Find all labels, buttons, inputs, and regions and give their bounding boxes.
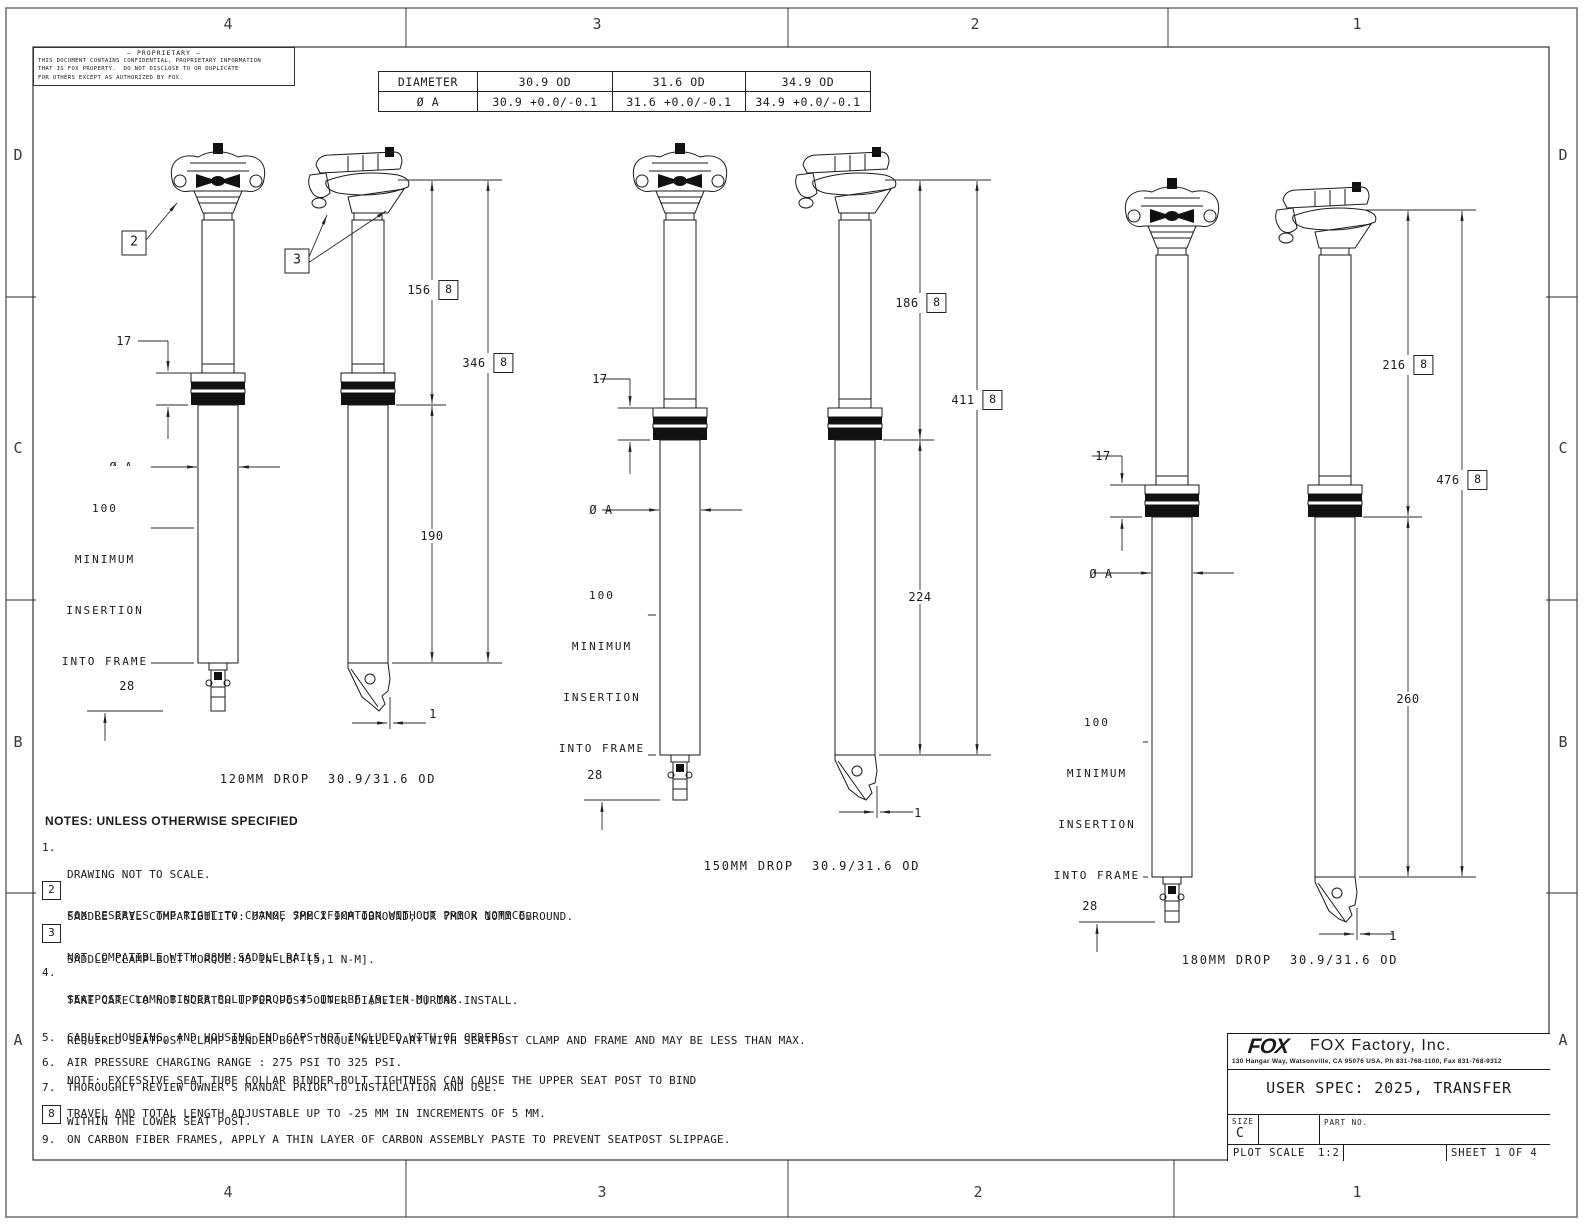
zone-col-label: 1 — [1352, 15, 1361, 33]
callout-saddle-clamp: 3 — [285, 249, 310, 274]
dim-drop-length: 156 8 — [404, 280, 461, 300]
drawing-sheet: 4 3 2 1 4 3 2 1 D C B A D C B A — PROPRI… — [0, 0, 1584, 1224]
zone-row-label: B — [13, 733, 22, 751]
zone-col-label: 3 — [597, 1183, 606, 1201]
note-number: 4. — [42, 966, 56, 979]
zone-row-label: D — [13, 146, 22, 164]
dim-drop-value: 186 — [895, 296, 918, 310]
zone-row-label: C — [1558, 439, 1567, 457]
plot-scale-value: 1:2 — [1318, 1147, 1340, 1159]
min-insertion-line: MINIMUM — [1054, 765, 1140, 782]
min-insertion-line: INTO FRAME — [559, 740, 645, 757]
fox-logo: FOX — [1247, 1035, 1290, 1059]
part-no-label: PART NO. — [1324, 1118, 1368, 1127]
size-label: SIZE — [1232, 1117, 1254, 1126]
note-number: 1. — [42, 841, 56, 854]
dim-tip-offset: 1 — [1389, 929, 1397, 943]
plot-scale-label: PLOT SCALE — [1233, 1147, 1305, 1159]
dim-total-length: 411 8 — [948, 390, 1005, 410]
proprietary-line: THAT IS FOX PROPERTY. DO NOT DISCLOSE TO… — [38, 65, 294, 73]
note-line: TRAVEL AND TOTAL LENGTH ADJUSTABLE UP TO… — [67, 1107, 546, 1121]
note-number: 6. — [42, 1056, 56, 1069]
note-ref-box: 8 — [1468, 470, 1488, 490]
note-line: ON CARBON FIBER FRAMES, APPLY A THIN LAY… — [67, 1133, 731, 1147]
dim-diameter-label: Ø A — [1089, 567, 1112, 581]
dim-collar-exposure: 17 — [1095, 449, 1110, 463]
zone-col-label: 3 — [592, 15, 601, 33]
dim-lower-length: 260 — [1393, 692, 1422, 706]
dim-bottom-length: 28 — [584, 768, 605, 782]
note-line: AIR PRESSURE CHARGING RANGE : 275 PSI TO… — [67, 1056, 402, 1070]
dim-lower-length: 190 — [417, 529, 446, 543]
dim-total-length: 346 8 — [459, 353, 516, 373]
min-insertion-line: INSERTION — [62, 602, 148, 619]
note-line: SADDLE RAIL COMPATIBILITY: Ø7MM, 7MM X 9… — [67, 910, 573, 924]
min-insertion-line: INTO FRAME — [62, 653, 148, 670]
drawing-caption-150: 150MM DROP 30.9/31.6 OD — [704, 859, 921, 873]
note-item: 7. THOROUGHLY REVIEW OWNER'S MANUAL PRIO… — [42, 1081, 498, 1095]
table-cell: 34.9 OD — [746, 72, 871, 92]
user-spec-title: USER SPEC: 2025, TRANSFER — [1228, 1079, 1550, 1097]
dim-collar-exposure: 17 — [116, 334, 131, 348]
note-item: 8 TRAVEL AND TOTAL LENGTH ADJUSTABLE UP … — [42, 1107, 546, 1121]
dim-drop-length: 186 8 — [892, 293, 949, 313]
dim-total-value: 476 — [1436, 473, 1459, 487]
zone-col-label: 2 — [970, 15, 979, 33]
note-number-boxed: 8 — [42, 1105, 61, 1124]
size-value: C — [1236, 1126, 1244, 1141]
dim-total-value: 411 — [951, 393, 974, 407]
min-insertion-line: 100 — [559, 587, 645, 604]
dim-total-length: 476 8 — [1433, 470, 1490, 490]
dim-tip-offset: 1 — [429, 707, 437, 721]
dim-drop-value: 216 — [1382, 358, 1405, 372]
note-ref-box: 8 — [983, 390, 1003, 410]
dim-drop-length: 216 8 — [1379, 355, 1436, 375]
dim-collar-exposure: 17 — [592, 372, 607, 386]
note-ref-box: 8 — [1414, 355, 1434, 375]
table-cell: Ø A — [379, 92, 478, 112]
note-line: SADDLE CLAMP BOLT TORQUE:45 IN-LBF [5,1 … — [67, 953, 519, 967]
sheet-number: SHEET 1 OF 4 — [1451, 1147, 1538, 1159]
min-insertion-line: INSERTION — [1054, 816, 1140, 833]
note-item: 9. ON CARBON FIBER FRAMES, APPLY A THIN … — [42, 1133, 731, 1147]
note-number: 5. — [42, 1031, 56, 1044]
dim-drop-value: 156 — [407, 283, 430, 297]
proprietary-line: FOR OTHERS EXCEPT AS AUTHORIZED BY FOX. — [38, 74, 294, 82]
zone-row-label: A — [1558, 1031, 1567, 1049]
zone-col-label: 4 — [223, 1183, 232, 1201]
table-cell: 30.9 +0.0/-0.1 — [478, 92, 613, 112]
table-cell: DIAMETER — [379, 72, 478, 92]
zone-col-label: 1 — [1352, 1183, 1361, 1201]
note-ref-box: 8 — [439, 280, 459, 300]
notes-heading: NOTES: UNLESS OTHERWISE SPECIFIED — [45, 814, 298, 828]
note-line: CABLE, HOUSING, AND HOUSING END CAPS NOT… — [67, 1031, 512, 1045]
note-line: DRAWING NOT TO SCALE. — [67, 868, 532, 882]
zone-row-label: C — [13, 439, 22, 457]
table-cell: 34.9 +0.0/-0.1 — [746, 92, 871, 112]
table-cell: 31.6 OD — [613, 72, 746, 92]
min-insertion-line: 100 — [62, 500, 148, 517]
note-ref-box: 8 — [494, 353, 514, 373]
min-insertion-line: INSERTION — [559, 689, 645, 706]
dim-lower-length: 224 — [905, 590, 934, 604]
callout-saddle-rail: 2 — [122, 231, 147, 256]
min-insertion-line: MINIMUM — [62, 551, 148, 568]
drawing-caption-180: 180MM DROP 30.9/31.6 OD — [1182, 953, 1399, 967]
table-cell: 30.9 OD — [478, 72, 613, 92]
min-insertion-line: 100 — [1054, 714, 1140, 731]
note-line: SEATPOST CLAMP BINDER BOLT TORQUE 45 IN-… — [67, 993, 806, 1007]
min-insertion-note: 100 MINIMUM INSERTION INTO FRAME — [59, 466, 151, 704]
title-block: FOX FOX Factory, Inc. 130 Hangar Way, Wa… — [1227, 1033, 1550, 1161]
note-ref-box: 8 — [927, 293, 947, 313]
table-cell: 31.6 +0.0/-0.1 — [613, 92, 746, 112]
zone-col-label: 4 — [223, 15, 232, 33]
note-number-boxed: 3 — [42, 924, 61, 943]
proprietary-line: THIS DOCUMENT CONTAINS CONFIDENTIAL, PRO… — [38, 57, 294, 65]
note-number: 9. — [42, 1133, 56, 1146]
company-address: 130 Hangar Way, Watsonville, CA 95076 US… — [1232, 1058, 1502, 1065]
note-line: THOROUGHLY REVIEW OWNER'S MANUAL PRIOR T… — [67, 1081, 498, 1095]
zone-col-label: 2 — [973, 1183, 982, 1201]
dim-diameter-label: Ø A — [589, 503, 612, 517]
drawing-caption-120: 120MM DROP 30.9/31.6 OD — [220, 772, 437, 786]
proprietary-title: — PROPRIETARY — — [34, 49, 294, 57]
min-insertion-note: 100 MINIMUM INSERTION INTO FRAME — [556, 553, 648, 791]
min-insertion-note: 100 MINIMUM INSERTION INTO FRAME — [1051, 680, 1143, 918]
dim-total-value: 346 — [462, 356, 485, 370]
zone-row-label: B — [1558, 733, 1567, 751]
zone-row-label: A — [13, 1031, 22, 1049]
proprietary-notice: — PROPRIETARY — THIS DOCUMENT CONTAINS C… — [33, 47, 295, 86]
note-number: 7. — [42, 1081, 56, 1094]
dim-bottom-length: 28 — [119, 679, 134, 693]
note-number-boxed: 2 — [42, 881, 61, 900]
diameter-table: DIAMETER 30.9 OD 31.6 OD 34.9 OD Ø A 30.… — [378, 71, 871, 112]
company-name: FOX Factory, Inc. — [1310, 1037, 1451, 1055]
dim-bottom-length: 28 — [1079, 899, 1100, 913]
min-insertion-line: INTO FRAME — [1054, 867, 1140, 884]
dim-tip-offset: 1 — [914, 806, 922, 820]
note-item: 6. AIR PRESSURE CHARGING RANGE : 275 PSI… — [42, 1056, 402, 1070]
note-item: 5. CABLE, HOUSING, AND HOUSING END CAPS … — [42, 1031, 512, 1045]
zone-row-label: D — [1558, 146, 1567, 164]
min-insertion-line: MINIMUM — [559, 638, 645, 655]
